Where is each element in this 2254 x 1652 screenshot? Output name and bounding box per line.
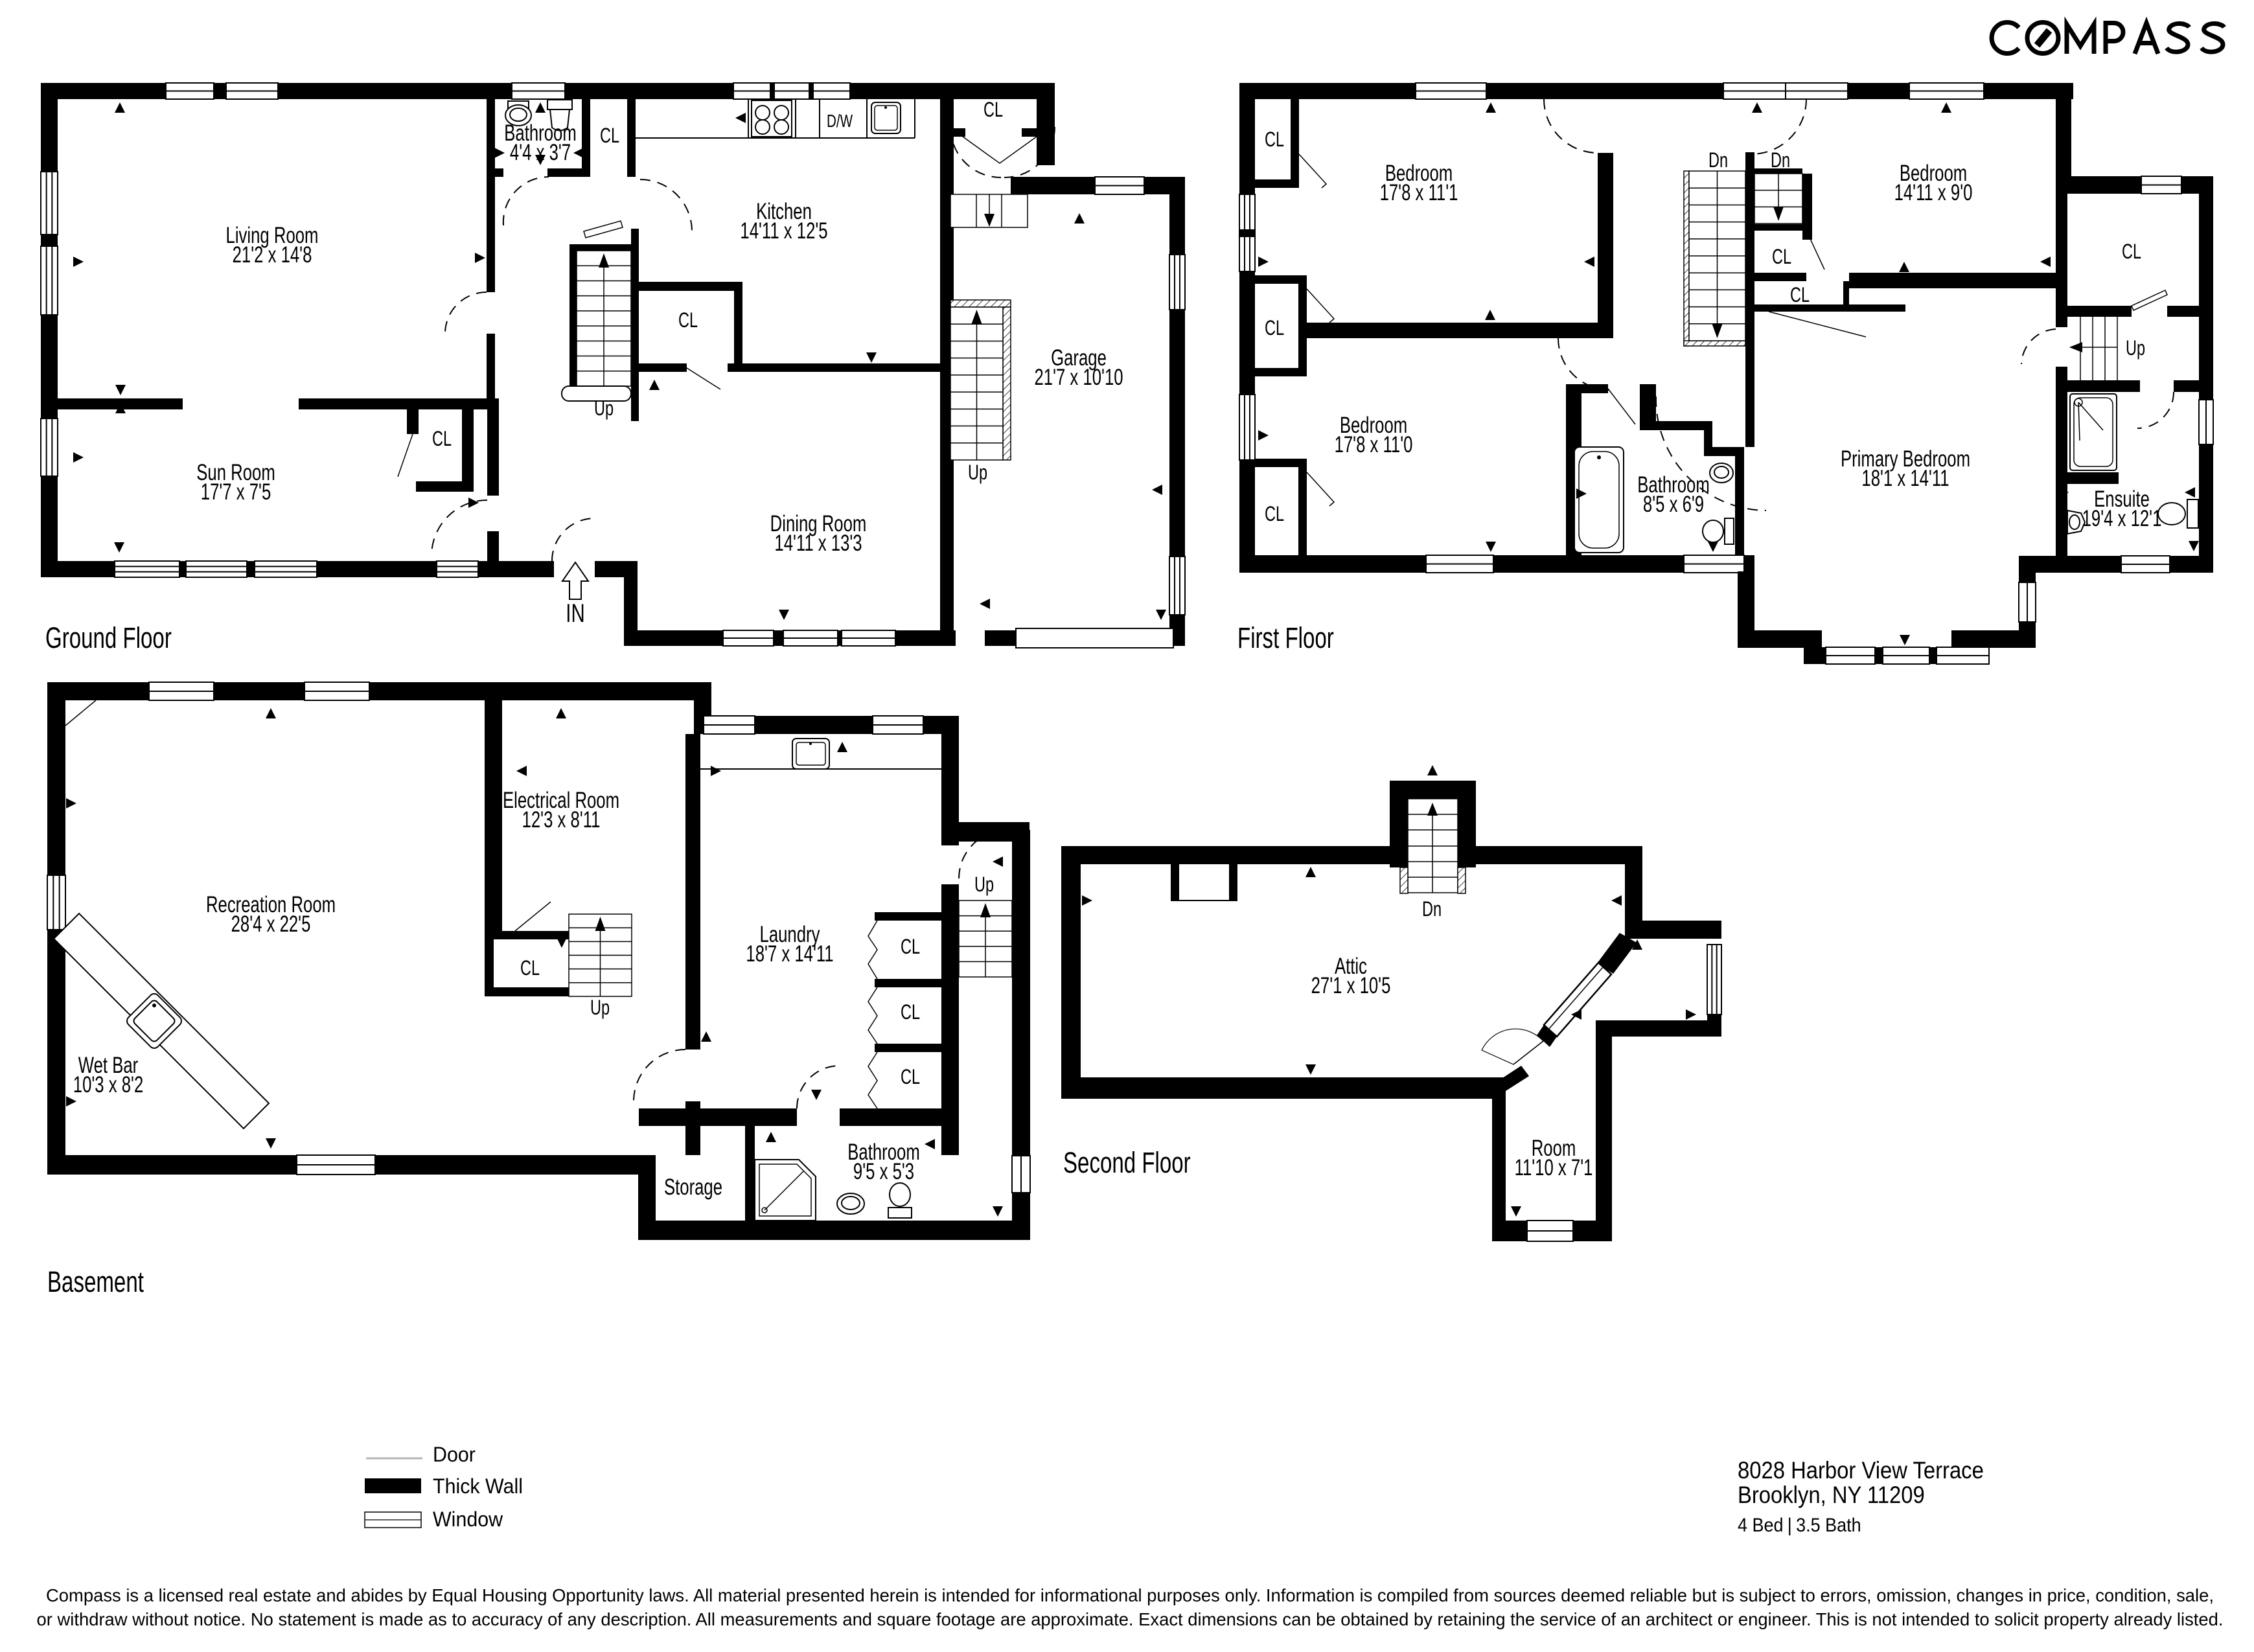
- svg-text:CL: CL: [1265, 317, 1284, 339]
- svg-text:17'8 x 11'1: 17'8 x 11'1: [1380, 179, 1458, 205]
- svg-text:Dn: Dn: [1422, 898, 1442, 921]
- svg-text:Dn: Dn: [1771, 149, 1790, 172]
- svg-text:14'11 x 12'5: 14'11 x 12'5: [740, 218, 827, 244]
- svg-text:8'5 x 6'9: 8'5 x 6'9: [1643, 491, 1704, 517]
- svg-text:Up: Up: [590, 996, 610, 1019]
- svg-text:Up: Up: [968, 461, 987, 484]
- svg-text:14'11 x 9'0: 14'11 x 9'0: [1894, 179, 1973, 205]
- svg-text:CL: CL: [600, 124, 619, 147]
- svg-text:17'8 x 11'0: 17'8 x 11'0: [1335, 431, 1413, 457]
- svg-text:Door: Door: [433, 1443, 476, 1466]
- svg-text:Storage: Storage: [664, 1174, 722, 1200]
- svg-text:CL: CL: [520, 957, 540, 980]
- svg-text:CL: CL: [901, 1066, 920, 1088]
- svg-text:21'2 x 14'8: 21'2 x 14'8: [233, 242, 312, 268]
- svg-text:11'10 x 7'1: 11'10 x 7'1: [1515, 1154, 1593, 1180]
- svg-text:Basement: Basement: [47, 1266, 144, 1298]
- svg-text:21'7 x 10'10: 21'7 x 10'10: [1034, 364, 1123, 390]
- svg-text:CL: CL: [1265, 503, 1284, 525]
- svg-text:9'5 x 5'3: 9'5 x 5'3: [853, 1158, 914, 1184]
- svg-text:CL: CL: [901, 1001, 920, 1024]
- svg-text:4 Bed|3.5 Bath: 4 Bed|3.5 Bath: [1738, 1515, 1861, 1537]
- svg-text:28'4 x 22'5: 28'4 x 22'5: [231, 911, 311, 937]
- svg-text:18'1 x 14'11: 18'1 x 14'11: [1861, 465, 1949, 491]
- svg-text:17'7 x 7'5: 17'7 x 7'5: [201, 479, 271, 505]
- svg-text:Window: Window: [433, 1508, 503, 1531]
- svg-text:CL: CL: [901, 935, 920, 958]
- svg-text:CL: CL: [678, 309, 698, 332]
- svg-text:12'3 x 8'11: 12'3 x 8'11: [522, 807, 601, 832]
- svg-text:19'4 x 12'1: 19'4 x 12'1: [2082, 505, 2162, 531]
- svg-text:IN: IN: [566, 599, 584, 628]
- svg-text:CL: CL: [1265, 128, 1284, 151]
- svg-text:Brooklyn, NY 11209: Brooklyn, NY 11209: [1738, 1482, 1925, 1509]
- svg-text:Up: Up: [2126, 337, 2145, 360]
- svg-text:CL: CL: [983, 98, 1003, 121]
- svg-text:D/W: D/W: [827, 111, 853, 132]
- svg-text:Up: Up: [594, 397, 614, 420]
- svg-text:CL: CL: [1790, 284, 1810, 306]
- svg-text:27'1 x 10'5: 27'1 x 10'5: [1311, 972, 1391, 998]
- svg-text:First Floor: First Floor: [1237, 622, 1334, 654]
- svg-text:Second Floor: Second Floor: [1063, 1147, 1191, 1179]
- svg-text:18'7 x 14'11: 18'7 x 14'11: [746, 941, 833, 967]
- svg-text:14'11 x 13'3: 14'11 x 13'3: [774, 530, 862, 556]
- svg-text:Dn: Dn: [1708, 149, 1728, 172]
- svg-text:CL: CL: [2122, 240, 2141, 263]
- svg-text:or withdraw without notice. No: or withdraw without notice. No statement…: [37, 1609, 2224, 1629]
- svg-text:Compass is a licensed real est: Compass is a licensed real estate and ab…: [46, 1585, 2214, 1605]
- svg-text:CL: CL: [1772, 246, 1791, 268]
- svg-text:CL: CL: [432, 428, 452, 450]
- svg-text:10'3 x 8'2: 10'3 x 8'2: [73, 1072, 143, 1097]
- svg-text:Ground Floor: Ground Floor: [45, 622, 172, 654]
- svg-text:Thick Wall: Thick Wall: [433, 1474, 523, 1498]
- svg-text:Up: Up: [974, 873, 994, 896]
- svg-text:8028 Harbor View Terrace: 8028 Harbor View Terrace: [1738, 1457, 1984, 1484]
